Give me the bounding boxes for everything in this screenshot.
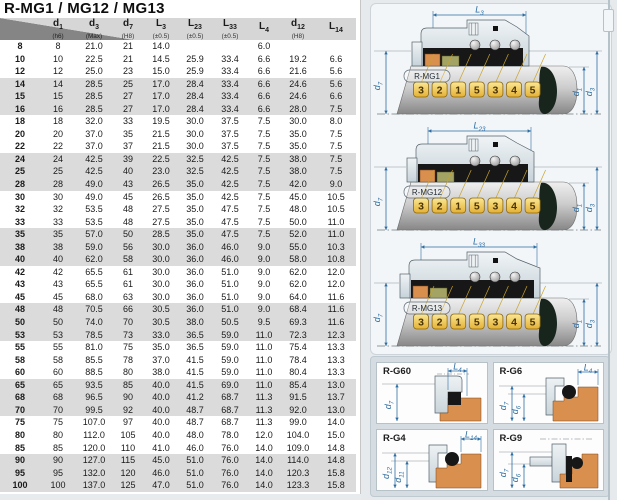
cell: 51.0 bbox=[178, 479, 212, 492]
page-title: R-MG1 / MG12 / MG13 bbox=[4, 0, 165, 17]
cell: 17.0 bbox=[144, 103, 178, 116]
cell: 33.4 bbox=[212, 90, 248, 103]
cell: 60 bbox=[40, 366, 76, 379]
cell: 52.0 bbox=[280, 228, 316, 241]
cell: 9.0 bbox=[316, 178, 356, 191]
cell: 33 bbox=[40, 216, 76, 229]
part-number-tag: 3 bbox=[414, 314, 429, 329]
table-head-row: d1(h6)d3(Max)d7(H8)L3(±0.5)L23(±0.5)L33(… bbox=[0, 18, 356, 40]
detail-diagram-label: R-G60 bbox=[383, 366, 411, 377]
elastomer bbox=[448, 392, 461, 405]
cell: 30.0 bbox=[144, 291, 178, 304]
cell: 47.5 bbox=[212, 203, 248, 216]
cell: 32.5 bbox=[178, 153, 212, 166]
cell: 47.5 bbox=[212, 216, 248, 229]
cell: 37.5 bbox=[212, 128, 248, 141]
cell: 6.6 bbox=[248, 65, 280, 78]
o-ring bbox=[445, 452, 459, 466]
cell: 9.0 bbox=[248, 253, 280, 266]
cell: 17.0 bbox=[144, 90, 178, 103]
column-header: d12(H8) bbox=[280, 18, 316, 40]
cell: 11.0 bbox=[248, 354, 280, 367]
cell: 74.0 bbox=[76, 316, 112, 329]
cell: 17.0 bbox=[144, 78, 178, 91]
cell: 48 bbox=[112, 203, 144, 216]
cell: 5.6 bbox=[316, 78, 356, 91]
table-row: 383859.05630.036.046.09.055.010.3 bbox=[0, 241, 356, 254]
seal-cross-section: 3215345 R-MG1 L3 d7 d1 d3 bbox=[371, 4, 609, 120]
svg-text:3: 3 bbox=[492, 201, 498, 213]
cell: 24.6 bbox=[280, 78, 316, 91]
part-number-tag: 3 bbox=[414, 82, 429, 97]
row-label: 53 bbox=[0, 329, 40, 342]
cell: 70.5 bbox=[76, 303, 112, 316]
row-label: 22 bbox=[0, 140, 40, 153]
cell: 28.4 bbox=[178, 103, 212, 116]
cell: 25.0 bbox=[76, 65, 112, 78]
cell: 99.5 bbox=[76, 404, 112, 417]
svg-text:5: 5 bbox=[530, 201, 536, 213]
cell: 68 bbox=[40, 391, 76, 404]
sleeve bbox=[530, 457, 552, 466]
cell: 13.7 bbox=[316, 391, 356, 404]
cell: 5.6 bbox=[316, 65, 356, 78]
cell: 42.5 bbox=[212, 153, 248, 166]
cell: 48.7 bbox=[178, 416, 212, 429]
detail-diagram-r-g60: L4 d7R-G60 bbox=[376, 362, 488, 424]
spring-coil bbox=[510, 40, 520, 50]
cell: 36.0 bbox=[178, 253, 212, 266]
cell: 7.5 bbox=[248, 216, 280, 229]
cell: 11.6 bbox=[316, 291, 356, 304]
cell: 14.8 bbox=[316, 442, 356, 455]
part-number-tag: 3 bbox=[488, 82, 503, 97]
cell: 37.5 bbox=[212, 115, 248, 128]
spring-coil bbox=[470, 272, 480, 282]
cell: 80 bbox=[112, 366, 144, 379]
row-label: 55 bbox=[0, 341, 40, 354]
cell: 9.0 bbox=[248, 278, 280, 291]
cell: 40 bbox=[40, 253, 76, 266]
cell: 35.0 bbox=[280, 128, 316, 141]
cell: 62.0 bbox=[280, 278, 316, 291]
table-body: 8821.02114.06.0101022.52114.525.933.46.6… bbox=[0, 40, 356, 492]
table-row: 606088.58038.041.559.011.080.413.3 bbox=[0, 366, 356, 379]
cell: 51.0 bbox=[212, 266, 248, 279]
cell: 38.0 bbox=[280, 165, 316, 178]
cell: 57.0 bbox=[76, 228, 112, 241]
cell: 59.0 bbox=[212, 341, 248, 354]
table-row: 101022.52114.525.933.46.619.26.6 bbox=[0, 53, 356, 66]
page-edge-line bbox=[608, 0, 610, 500]
main-diagram-r-mg12: 3215345 R-MG12 L23 d7 d1 d3 bbox=[371, 120, 609, 236]
cell: 42.0 bbox=[280, 178, 316, 191]
row-label: 25 bbox=[0, 165, 40, 178]
cell: 7.5 bbox=[248, 203, 280, 216]
cell: 65.5 bbox=[76, 266, 112, 279]
cell: 35 bbox=[40, 228, 76, 241]
dim-label: d7 bbox=[372, 81, 384, 90]
cell: 30.0 bbox=[144, 241, 178, 254]
spring-coil bbox=[470, 156, 480, 166]
part-number-tag: 4 bbox=[507, 314, 522, 329]
row-label: 16 bbox=[0, 103, 40, 116]
cell: 90 bbox=[112, 391, 144, 404]
cell: 25.9 bbox=[178, 53, 212, 66]
cell: 75.4 bbox=[280, 341, 316, 354]
cell: 37.0 bbox=[76, 128, 112, 141]
cell: 69.0 bbox=[212, 379, 248, 392]
cell: 7.5 bbox=[248, 178, 280, 191]
cell: 40 bbox=[112, 165, 144, 178]
cell bbox=[280, 40, 316, 53]
part-number-tag: 1 bbox=[451, 198, 466, 213]
cell: 25 bbox=[112, 78, 144, 91]
cell: 33.4 bbox=[212, 78, 248, 91]
column-header: L33(±0.5) bbox=[212, 18, 248, 40]
dim-label: d3 bbox=[584, 203, 596, 212]
cell: 36.0 bbox=[178, 266, 212, 279]
cell: 30.0 bbox=[144, 266, 178, 279]
table-row: 707099.59240.048.768.711.392.013.0 bbox=[0, 404, 356, 417]
cell: 36.0 bbox=[178, 278, 212, 291]
cell: 43 bbox=[40, 278, 76, 291]
cell: 47.0 bbox=[144, 479, 178, 492]
cell: 73 bbox=[112, 329, 144, 342]
cell: 127.0 bbox=[76, 454, 112, 467]
row-label: 60 bbox=[0, 366, 40, 379]
part-number-tag: 5 bbox=[525, 82, 540, 97]
cell: 69.3 bbox=[280, 316, 316, 329]
column-header: L3(±0.5) bbox=[144, 18, 178, 40]
cell: 132.0 bbox=[76, 467, 112, 480]
column-header: L4 bbox=[248, 18, 280, 40]
cell: 53.5 bbox=[76, 203, 112, 216]
dim-label: L4 bbox=[583, 363, 592, 375]
row-label: 35 bbox=[0, 228, 40, 241]
cell: 30.0 bbox=[144, 278, 178, 291]
table-row: 656593.58540.041.569.011.085.413.0 bbox=[0, 379, 356, 392]
detail-diagram-label: R-G9 bbox=[500, 433, 523, 444]
cell: 35 bbox=[112, 128, 144, 141]
column-header: L14 bbox=[316, 18, 356, 40]
part-number-tag: 5 bbox=[469, 314, 484, 329]
column-header: d3(Max) bbox=[76, 18, 112, 40]
part-number-tag: 1 bbox=[451, 314, 466, 329]
cell: 35.0 bbox=[178, 203, 212, 216]
table-row: 404062.05830.036.046.09.058.010.8 bbox=[0, 253, 356, 266]
cell: 109.0 bbox=[280, 442, 316, 455]
cell: 30.0 bbox=[144, 253, 178, 266]
cell: 51.0 bbox=[212, 303, 248, 316]
svg-text:5: 5 bbox=[474, 317, 480, 329]
table-row: 161628.52717.028.433.46.628.07.5 bbox=[0, 103, 356, 116]
cell: 35.0 bbox=[178, 191, 212, 204]
part-number-tag: 5 bbox=[469, 198, 484, 213]
dimension-table-panel: R-MG1 / MG12 / MG13 d1(h6)d3(Max)d7(H8)L… bbox=[0, 0, 361, 494]
cell: 35.0 bbox=[178, 178, 212, 191]
cell: 21.6 bbox=[280, 65, 316, 78]
dim-label: d3 bbox=[584, 319, 596, 328]
cell: 7.5 bbox=[316, 103, 356, 116]
cell: 28 bbox=[40, 178, 76, 191]
cell: 13.3 bbox=[316, 366, 356, 379]
cell: 58 bbox=[40, 354, 76, 367]
cell: 41.5 bbox=[178, 366, 212, 379]
table-row: 181832.03319.530.037.57.530.08.0 bbox=[0, 115, 356, 128]
cell: 8 bbox=[40, 40, 76, 53]
table-row: 121225.02315.025.933.46.621.65.6 bbox=[0, 65, 356, 78]
cell: 61 bbox=[112, 278, 144, 291]
cell: 21.5 bbox=[144, 140, 178, 153]
cell: 9.0 bbox=[248, 303, 280, 316]
cell: 115 bbox=[112, 454, 144, 467]
cell: 37.0 bbox=[144, 354, 178, 367]
cell: 55.0 bbox=[280, 241, 316, 254]
cell: 27 bbox=[112, 90, 144, 103]
part-number-tag: 2 bbox=[432, 82, 447, 97]
svg-text:1: 1 bbox=[455, 85, 461, 97]
column-header: d7(H8) bbox=[112, 18, 144, 40]
cell: 48.7 bbox=[178, 404, 212, 417]
svg-text:4: 4 bbox=[511, 317, 517, 329]
table-row: 7575107.09740.048.768.711.399.014.0 bbox=[0, 416, 356, 429]
seat-ring bbox=[425, 54, 440, 66]
cell: 21.5 bbox=[144, 128, 178, 141]
cell: 30.0 bbox=[178, 115, 212, 128]
cell: 15.0 bbox=[316, 429, 356, 442]
cell: 72.3 bbox=[280, 329, 316, 342]
cell: 93.5 bbox=[76, 379, 112, 392]
seat-ring bbox=[420, 170, 435, 182]
cell: 88.5 bbox=[76, 366, 112, 379]
spring-coil bbox=[490, 40, 500, 50]
row-label: 12 bbox=[0, 65, 40, 78]
cell: 45.0 bbox=[280, 191, 316, 204]
cell: 28.5 bbox=[76, 90, 112, 103]
cell: 27 bbox=[112, 103, 144, 116]
cell: 58.0 bbox=[280, 253, 316, 266]
cell: 76.0 bbox=[212, 467, 248, 480]
cell: 38.0 bbox=[144, 366, 178, 379]
cell: 39 bbox=[112, 153, 144, 166]
row-label: 14 bbox=[0, 78, 40, 91]
detail-diagram-r-g9: d7 d6R-G9 bbox=[493, 429, 605, 491]
detail-diagram-label: R-G4 bbox=[383, 433, 406, 444]
cell: 7.5 bbox=[316, 128, 356, 141]
cell: 14.0 bbox=[248, 479, 280, 492]
cell: 65 bbox=[40, 379, 76, 392]
cell: 36.0 bbox=[178, 291, 212, 304]
cell: 35.0 bbox=[280, 140, 316, 153]
cell: 21 bbox=[112, 53, 144, 66]
cell: 6.6 bbox=[248, 90, 280, 103]
cell: 41.5 bbox=[178, 354, 212, 367]
cell: 14.0 bbox=[248, 442, 280, 455]
cell: 80.4 bbox=[280, 366, 316, 379]
cell: 37.5 bbox=[212, 140, 248, 153]
corner-header-cell bbox=[0, 18, 40, 40]
dim-label: d7 bbox=[372, 197, 384, 206]
cell: 18 bbox=[40, 115, 76, 128]
cell: 36.5 bbox=[178, 329, 212, 342]
svg-text:3: 3 bbox=[492, 317, 498, 329]
cell: 96.5 bbox=[76, 391, 112, 404]
part-number-tag: 4 bbox=[507, 82, 522, 97]
cell: 35.0 bbox=[178, 216, 212, 229]
cell: 64.0 bbox=[280, 291, 316, 304]
cell: 27.5 bbox=[144, 203, 178, 216]
cell: 91.5 bbox=[280, 391, 316, 404]
seal-face-ring bbox=[442, 56, 459, 66]
seal-face-ring bbox=[437, 172, 454, 182]
cell: 51.0 bbox=[178, 467, 212, 480]
cell: 28.4 bbox=[178, 78, 212, 91]
table-row: 434365.56130.036.051.09.062.012.0 bbox=[0, 278, 356, 291]
cell: 11.3 bbox=[248, 391, 280, 404]
row-label: 20 bbox=[0, 128, 40, 141]
cell: 75 bbox=[40, 416, 76, 429]
row-label: 48 bbox=[0, 303, 40, 316]
table-row: 8585120.011041.046.076.014.0109.014.8 bbox=[0, 442, 356, 455]
table-row: 303049.04526.535.042.57.545.010.5 bbox=[0, 191, 356, 204]
cell: 12.0 bbox=[316, 278, 356, 291]
cell: 11.6 bbox=[316, 316, 356, 329]
cell: 12.0 bbox=[248, 429, 280, 442]
cell: 32 bbox=[40, 203, 76, 216]
dim-label: L14 bbox=[465, 430, 477, 442]
cell: 40.0 bbox=[144, 429, 178, 442]
cell: 46.0 bbox=[212, 253, 248, 266]
cell: 100 bbox=[40, 479, 76, 492]
svg-text:3: 3 bbox=[492, 85, 498, 97]
cell: 49.0 bbox=[76, 191, 112, 204]
row-label: 43 bbox=[0, 278, 40, 291]
svg-text:5: 5 bbox=[530, 85, 536, 97]
cell: 50.0 bbox=[280, 216, 316, 229]
svg-text:5: 5 bbox=[474, 85, 480, 97]
cell: 7.5 bbox=[248, 153, 280, 166]
cell: 24 bbox=[40, 153, 76, 166]
row-label: 24 bbox=[0, 153, 40, 166]
table-row: 151528.52717.028.433.46.624.66.6 bbox=[0, 90, 356, 103]
cell: 70 bbox=[40, 404, 76, 417]
cell: 48.0 bbox=[280, 203, 316, 216]
cell: 25 bbox=[40, 165, 76, 178]
detail-diagram-r-g6: L4 d7 d6R-G6 bbox=[493, 362, 605, 424]
main-diagram-r-mg13: 3215345 R-MG13 L33 d7 d1 d3 bbox=[371, 236, 609, 352]
cell: 95 bbox=[40, 467, 76, 480]
cell: 26.5 bbox=[144, 178, 178, 191]
table-row: 100100137.012547.051.076.014.0123.315.8 bbox=[0, 479, 356, 492]
cell: 75 bbox=[112, 341, 144, 354]
cell: 36.5 bbox=[178, 341, 212, 354]
table-row: 9090127.011545.051.076.014.0114.014.8 bbox=[0, 454, 356, 467]
cell bbox=[212, 40, 248, 53]
cell: 85.5 bbox=[76, 354, 112, 367]
cell: 33.0 bbox=[144, 329, 178, 342]
cell: 7.5 bbox=[316, 140, 356, 153]
cell: 120 bbox=[112, 467, 144, 480]
cell bbox=[178, 40, 212, 53]
cell: 9.0 bbox=[248, 291, 280, 304]
row-label: 68 bbox=[0, 391, 40, 404]
cell: 110 bbox=[112, 442, 144, 455]
row-label: 42 bbox=[0, 266, 40, 279]
cell: 41.5 bbox=[178, 379, 212, 392]
cell: 97 bbox=[112, 416, 144, 429]
cell: 11.6 bbox=[316, 303, 356, 316]
cell: 92.0 bbox=[280, 404, 316, 417]
cell: 11.0 bbox=[248, 379, 280, 392]
table-row: 282849.04326.535.042.57.542.09.0 bbox=[0, 178, 356, 191]
cell: 50 bbox=[40, 316, 76, 329]
table-row: 8821.02114.06.0 bbox=[0, 40, 356, 53]
cell: 14.0 bbox=[248, 467, 280, 480]
cell: 11.0 bbox=[248, 341, 280, 354]
cell: 51.0 bbox=[212, 278, 248, 291]
cell: 42.5 bbox=[76, 153, 112, 166]
cell: 6.6 bbox=[248, 78, 280, 91]
cell: 40.0 bbox=[144, 404, 178, 417]
cell: 33 bbox=[112, 115, 144, 128]
cell: 48.0 bbox=[178, 429, 212, 442]
row-label: 32 bbox=[0, 203, 40, 216]
cell: 42.5 bbox=[212, 178, 248, 191]
row-label: 85 bbox=[0, 442, 40, 455]
table-row: 333353.54827.535.047.57.550.011.0 bbox=[0, 216, 356, 229]
cell: 14.0 bbox=[316, 416, 356, 429]
cell: 51.0 bbox=[178, 454, 212, 467]
cell: 62.0 bbox=[280, 266, 316, 279]
svg-text:4: 4 bbox=[511, 201, 517, 213]
cell: 42.5 bbox=[212, 191, 248, 204]
set-screw bbox=[469, 139, 478, 151]
cell: 62.0 bbox=[76, 253, 112, 266]
table-row: 535378.57333.036.559.011.072.312.3 bbox=[0, 329, 356, 342]
cell: 11.0 bbox=[316, 216, 356, 229]
main-diagram-r-mg1: 3215345 R-MG1 L3 d7 d1 d3 bbox=[371, 4, 609, 120]
cell: 70 bbox=[112, 316, 144, 329]
seal-cross-section: 3215345 R-MG12 L23 d7 d1 d3 bbox=[371, 120, 609, 236]
cell: 53 bbox=[40, 329, 76, 342]
cell: 65.5 bbox=[76, 278, 112, 291]
cell: 50 bbox=[112, 228, 144, 241]
cell: 28.5 bbox=[76, 103, 112, 116]
spring-coil bbox=[510, 272, 520, 282]
cell: 22.5 bbox=[76, 53, 112, 66]
cell: 40.0 bbox=[144, 416, 178, 429]
part-number-tag: 3 bbox=[414, 198, 429, 213]
svg-text:2: 2 bbox=[437, 201, 443, 213]
cell: 14.5 bbox=[144, 53, 178, 66]
cell bbox=[316, 40, 356, 53]
part-number-tag: 4 bbox=[507, 198, 522, 213]
spring-coil bbox=[510, 156, 520, 166]
row-label: 75 bbox=[0, 416, 40, 429]
cell: 123.3 bbox=[280, 479, 316, 492]
cell: 68.4 bbox=[280, 303, 316, 316]
cell: 85 bbox=[112, 379, 144, 392]
cell: 56 bbox=[112, 241, 144, 254]
cell: 114.0 bbox=[280, 454, 316, 467]
cell: 46.0 bbox=[178, 442, 212, 455]
table-row: 8080112.010540.048.078.012.0104.015.0 bbox=[0, 429, 356, 442]
cell: 76.0 bbox=[212, 454, 248, 467]
table-row: 141428.52517.028.433.46.624.65.6 bbox=[0, 78, 356, 91]
row-label: 28 bbox=[0, 178, 40, 191]
cell: 85 bbox=[40, 442, 76, 455]
